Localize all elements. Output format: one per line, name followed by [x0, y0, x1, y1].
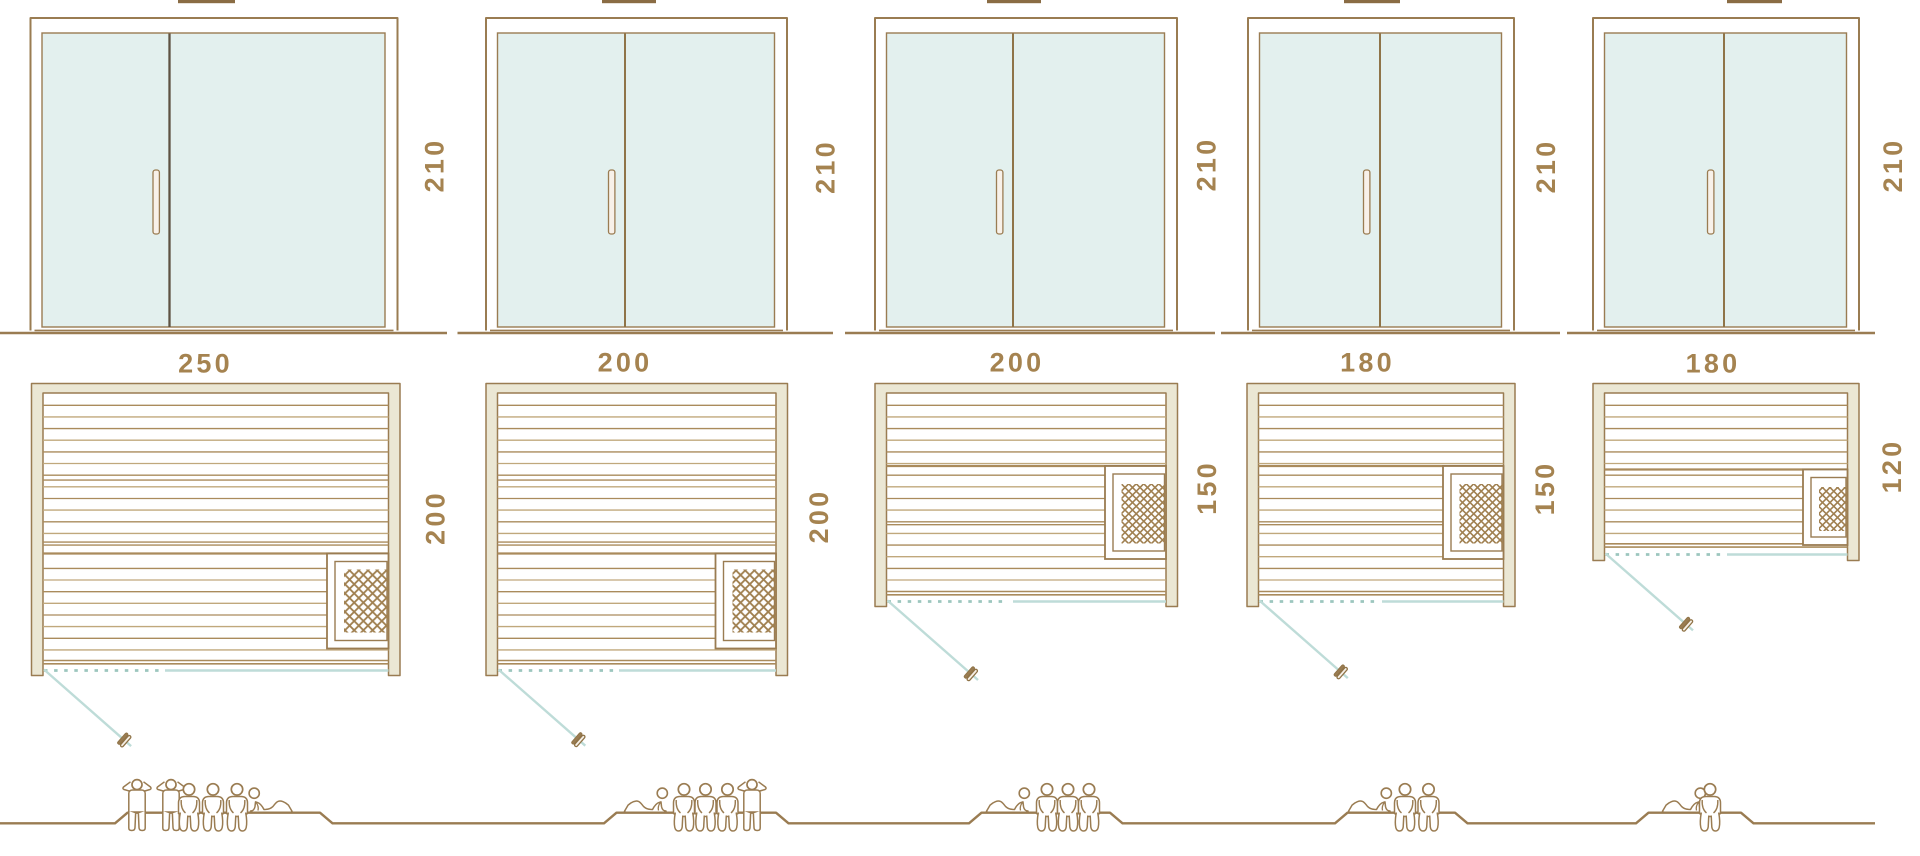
svg-text:150: 150 — [1192, 460, 1222, 515]
svg-text:200: 200 — [804, 489, 834, 544]
svg-text:180: 180 — [1686, 349, 1741, 379]
svg-text:210: 210 — [1531, 139, 1561, 194]
svg-text:200: 200 — [598, 348, 653, 378]
svg-text:200: 200 — [421, 490, 451, 545]
svg-text:210: 210 — [811, 139, 841, 194]
svg-text:120: 120 — [1877, 439, 1907, 494]
svg-text:180: 180 — [1340, 348, 1395, 378]
svg-text:150: 150 — [1530, 461, 1560, 516]
svg-text:200: 200 — [990, 348, 1045, 378]
svg-text:210: 210 — [1192, 137, 1222, 192]
svg-text:210: 210 — [420, 138, 450, 193]
svg-text:250: 250 — [178, 349, 233, 379]
svg-text:210: 210 — [1878, 138, 1908, 193]
